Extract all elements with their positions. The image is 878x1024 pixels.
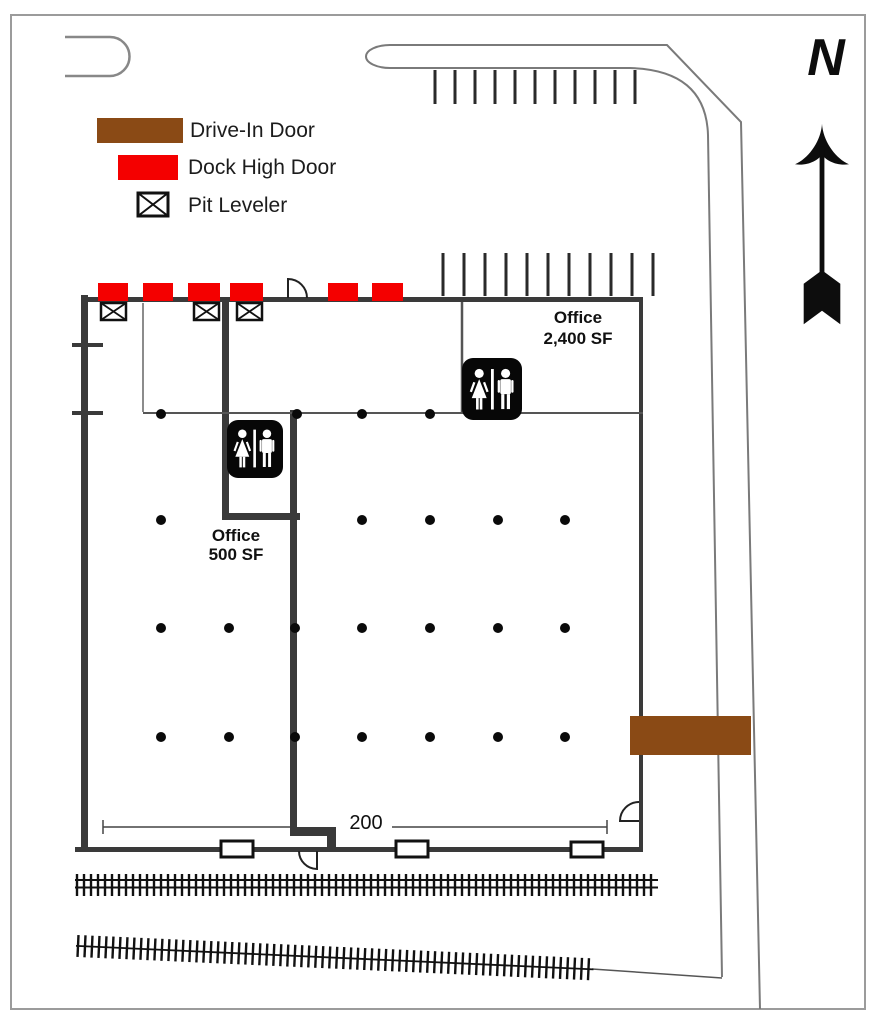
restroom-icon — [227, 420, 283, 478]
road-inner-edge — [390, 68, 722, 977]
building-walls — [72, 295, 643, 852]
column-dot — [560, 623, 570, 633]
column-dot — [560, 732, 570, 742]
road-end-cap — [366, 45, 390, 68]
column-dot — [224, 732, 234, 742]
railroad-track-2 — [76, 935, 594, 980]
dock-high-door — [230, 283, 263, 301]
demising-wall-stub — [327, 836, 336, 852]
column-dot — [425, 623, 435, 633]
west-wall — [81, 295, 88, 852]
office-large-label: Office 2,400 SF — [516, 307, 640, 349]
railroad-track-1 — [75, 874, 658, 896]
legend-dock-high-swatch — [118, 155, 178, 180]
rail-spur-line — [592, 969, 722, 978]
north-label: N — [796, 28, 856, 88]
column-dot — [425, 409, 435, 419]
east-wall — [639, 297, 643, 852]
south-wall — [75, 847, 643, 852]
legend-pit-leveler-label: Pit Leveler — [188, 193, 287, 218]
window-opening — [221, 841, 253, 857]
column-dot — [493, 515, 503, 525]
column-dot — [357, 409, 367, 419]
column-dot — [357, 623, 367, 633]
restroom-icon — [462, 358, 522, 420]
column-dot — [357, 515, 367, 525]
plan-linework — [0, 0, 878, 1024]
column-dot — [224, 623, 234, 633]
door-swing-east — [620, 802, 639, 821]
column-dot — [156, 732, 166, 742]
demising-wall-jog — [290, 827, 336, 836]
restroom-figures — [230, 423, 279, 474]
parking-stalls-north — [435, 70, 635, 104]
column-grid — [156, 409, 570, 742]
pit-levelers — [101, 303, 262, 320]
column-dot — [156, 409, 166, 419]
office-large-label-line2: 2,400 SF — [516, 328, 640, 349]
west-wall-joint-tick — [72, 411, 103, 415]
drive-in-door — [630, 716, 751, 755]
column-dot — [156, 515, 166, 525]
legend-dock-high-label: Dock High Door — [188, 155, 336, 180]
column-dot — [560, 515, 570, 525]
dock-high-door — [98, 283, 128, 301]
legend-pit-leveler-icon — [136, 191, 170, 218]
office-small-south-wall — [222, 513, 300, 520]
column-dot — [425, 732, 435, 742]
west-wall-joint-tick — [72, 343, 103, 347]
window-opening — [396, 841, 428, 857]
parking-stalls-building — [443, 253, 653, 296]
restroom-figures — [466, 362, 519, 417]
legend-drive-in-label: Drive-In Door — [190, 118, 315, 143]
column-dot — [156, 623, 166, 633]
column-dot — [290, 732, 300, 742]
office-small-label: Office 500 SF — [178, 526, 294, 564]
column-dot — [292, 409, 302, 419]
dock-high-door — [188, 283, 220, 301]
legend-drive-in-swatch — [97, 118, 183, 143]
north-arrow-icon — [794, 118, 850, 330]
column-dot — [493, 623, 503, 633]
door-swing-north — [288, 279, 307, 298]
office-large-label-line1: Office — [516, 307, 640, 328]
office-small-west-wall — [222, 300, 229, 520]
office-small-label-line1: Office — [178, 526, 294, 545]
demising-wall — [290, 410, 297, 834]
office-small-label-line2: 500 SF — [178, 545, 294, 564]
door-swing-south — [299, 851, 317, 869]
column-dot — [357, 732, 367, 742]
site-plan: Drive-In Door Dock High Door Pit Leveler… — [0, 0, 878, 1024]
driveway-return-curve — [65, 37, 130, 76]
column-dot — [425, 515, 435, 525]
window-opening — [571, 842, 603, 857]
road-outer-edge — [390, 45, 760, 1009]
column-dot — [493, 732, 503, 742]
dock-high-door — [143, 283, 173, 301]
column-dot — [290, 623, 300, 633]
dimension-label: 200 — [338, 812, 394, 835]
dock-high-door — [328, 283, 358, 301]
dock-high-door — [372, 283, 403, 301]
